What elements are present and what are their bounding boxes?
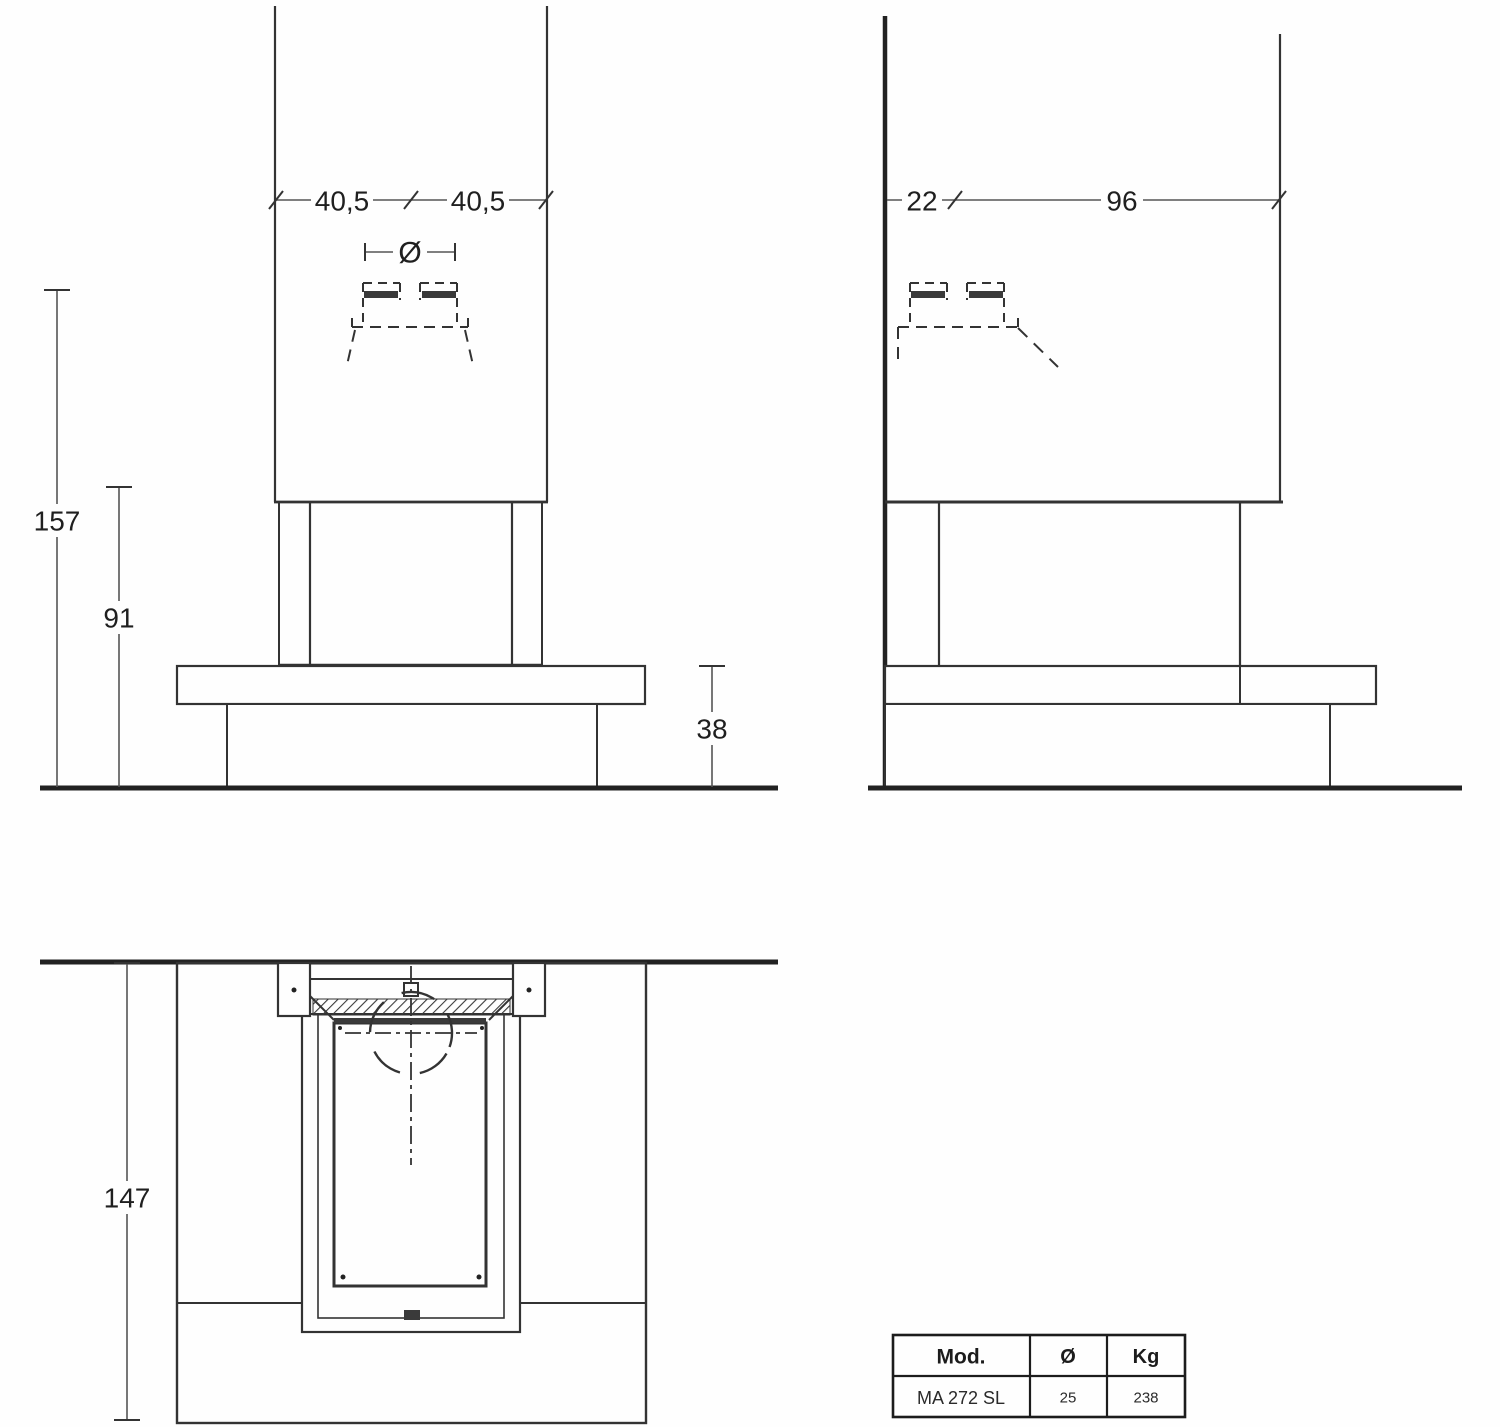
plan-insert-lintel xyxy=(334,1018,486,1023)
plan-view: 147 xyxy=(40,962,778,1423)
spec-table-header-mod: Mod. xyxy=(937,1346,986,1369)
spec-table-header-diameter: Ø xyxy=(1060,1346,1076,1368)
front-dim-diameter-label: Ø xyxy=(398,237,421,270)
front-collar-flange-right xyxy=(422,291,456,298)
technical-drawing-page: 40,5 40,5 Ø 157 91 38 xyxy=(0,0,1500,1427)
plan-insert-bolt xyxy=(341,1275,346,1280)
side-dim-wall-offset-label: 22 xyxy=(906,186,937,217)
plan-dim-total-depth-label: 147 xyxy=(104,1183,151,1214)
plan-anchor-bolt-left xyxy=(292,988,297,993)
front-dim-width-left-label: 40,5 xyxy=(315,186,370,217)
front-dim-total-height xyxy=(27,290,87,787)
front-collar-flange-left xyxy=(364,291,398,298)
front-dim-width xyxy=(269,184,553,215)
spec-table-weight-value: 238 xyxy=(1133,1390,1158,1407)
spec-table-model-value: MA 272 SL xyxy=(917,1388,1005,1408)
front-collar-flare-left xyxy=(347,330,355,365)
front-view: 40,5 40,5 Ø 157 91 38 xyxy=(27,6,778,788)
front-base-plinth xyxy=(227,704,597,787)
fireplace-dimension-drawing: 40,5 40,5 Ø 157 91 38 xyxy=(0,0,1500,1427)
plan-anchor-bolt-right xyxy=(527,988,532,993)
front-dim-opening-height-label: 91 xyxy=(103,603,134,634)
side-dim-depth-label: 96 xyxy=(1106,186,1137,217)
side-base-plinth xyxy=(885,704,1330,787)
side-view: 22 96 xyxy=(868,16,1462,790)
side-dim-depth xyxy=(887,184,1286,215)
side-hearth-slab xyxy=(885,666,1376,704)
front-dim-hearth-height-label: 38 xyxy=(696,714,727,745)
spec-table-header-weight: Kg xyxy=(1133,1346,1160,1368)
front-collar-flare-right xyxy=(465,330,473,365)
side-collar-flange-right xyxy=(969,291,1003,298)
plan-insert-bolt xyxy=(480,1026,484,1030)
side-collar-flange-left xyxy=(911,291,945,298)
front-dim-opening-height xyxy=(97,487,141,787)
side-collar-flare-right xyxy=(1018,328,1058,367)
plan-insert-bottom-latch xyxy=(404,1310,420,1320)
plan-insert-bolt xyxy=(338,1026,342,1030)
spec-table-diameter-value: 25 xyxy=(1060,1390,1077,1407)
plan-insert-bolt xyxy=(477,1275,482,1280)
spec-table: Mod. Ø Kg MA 272 SL 25 238 xyxy=(893,1335,1185,1417)
front-dim-total-height-label: 157 xyxy=(34,506,81,537)
front-dim-width-right-label: 40,5 xyxy=(451,186,506,217)
front-hearth-slab xyxy=(177,666,645,704)
